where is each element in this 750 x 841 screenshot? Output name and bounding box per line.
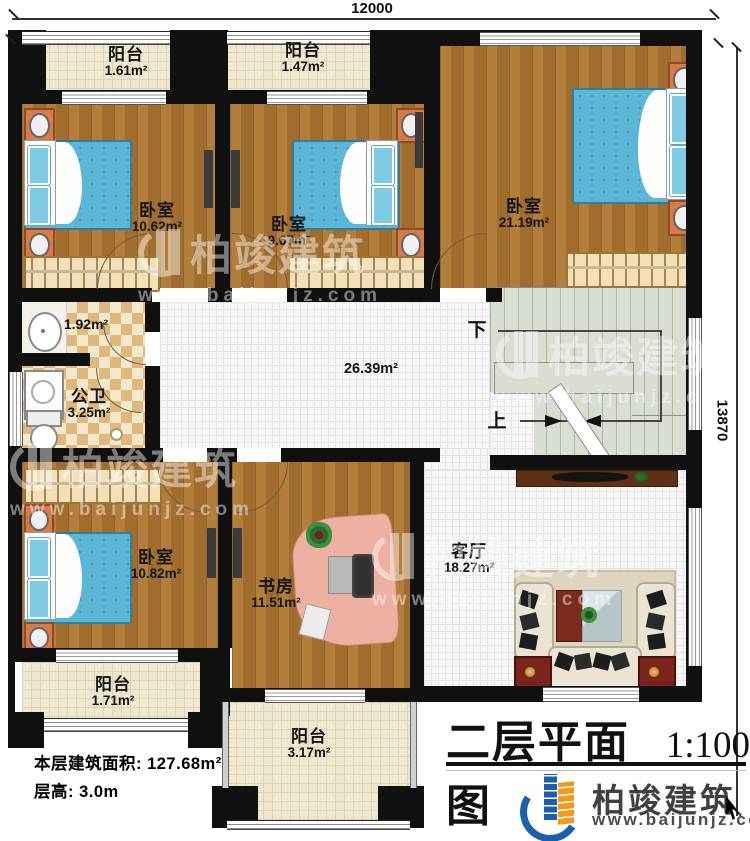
table-plant-icon bbox=[578, 604, 600, 626]
stairs-living-wall bbox=[490, 455, 702, 470]
title-underline bbox=[446, 762, 746, 766]
floor-drain-icon bbox=[110, 428, 123, 441]
stair-down-leader bbox=[498, 330, 662, 332]
room-label-bedroom-top-right: 卧室 21.19m² bbox=[499, 198, 549, 231]
wall-bathroom-right bbox=[145, 302, 160, 332]
pillow bbox=[28, 579, 50, 619]
door-panel bbox=[415, 112, 423, 168]
wall-bathroom-right bbox=[145, 366, 160, 448]
side-table-ornament-icon bbox=[649, 667, 659, 677]
door-panel bbox=[204, 150, 213, 208]
sofa-pillow bbox=[647, 633, 666, 650]
wardrobe bbox=[566, 252, 702, 288]
floor-height-info: 层高: 3.0m bbox=[34, 778, 119, 802]
logo-tower-blue-icon bbox=[544, 774, 557, 820]
balcony-connector bbox=[212, 688, 234, 702]
balcony-railing bbox=[227, 820, 410, 830]
room-label-washroom: 1.92m² bbox=[64, 317, 108, 332]
window bbox=[688, 508, 702, 666]
room-label-bathroom: 公卫 3.25m² bbox=[68, 388, 111, 421]
room-label-bedroom-top-mid: 卧室 9.67m² bbox=[268, 216, 311, 249]
room-label-balcony-bottom-mid: 阳台 3.17m² bbox=[288, 728, 331, 761]
balcony-railing bbox=[410, 702, 417, 788]
wall-hall-south bbox=[207, 448, 237, 462]
room-label-hallway: 26.39m² bbox=[344, 362, 398, 378]
window bbox=[265, 689, 365, 703]
window bbox=[543, 687, 639, 702]
hallway-floor bbox=[160, 302, 490, 448]
door-panel bbox=[233, 528, 242, 578]
door-panel bbox=[231, 150, 240, 208]
balcony-corner-block bbox=[188, 712, 222, 748]
window bbox=[62, 91, 166, 105]
pillow bbox=[372, 146, 394, 185]
window bbox=[56, 649, 178, 663]
balcony-railing bbox=[22, 31, 170, 45]
nightstand bbox=[24, 108, 55, 143]
balcony-railing bbox=[44, 718, 188, 732]
title-underline-thin bbox=[446, 770, 746, 771]
wall-middle bbox=[486, 288, 502, 302]
wardrobe bbox=[288, 256, 426, 292]
wall-middle bbox=[287, 288, 440, 302]
wall-hall-south bbox=[8, 448, 163, 462]
balcony-rail-left bbox=[8, 662, 15, 718]
desk-plant-icon bbox=[306, 522, 332, 548]
stairs-up-label: 上 bbox=[487, 406, 506, 433]
sofa-pillow bbox=[646, 612, 666, 630]
sink-drain-icon bbox=[41, 329, 45, 333]
wall-study-living bbox=[410, 455, 424, 702]
window bbox=[267, 91, 367, 105]
stair-arrow-right-icon bbox=[545, 415, 562, 427]
plan-scale: 1:100 bbox=[666, 724, 750, 767]
wall-bedrooms-divider bbox=[215, 90, 230, 288]
dimension-right-line bbox=[736, 48, 738, 816]
room-label-balcony-top-left: 阳台 1.61m² bbox=[105, 46, 148, 79]
balcony-connector bbox=[390, 688, 424, 702]
sofa-pillow bbox=[519, 633, 538, 651]
floor-area-info: 本层建筑面积: 127.68m² bbox=[34, 750, 222, 774]
brand-logo-icon bbox=[520, 772, 586, 834]
stair-leader-vertical bbox=[660, 330, 662, 422]
pillow bbox=[28, 146, 50, 185]
window bbox=[688, 318, 702, 430]
dimension-top-value: 12000 bbox=[340, 0, 404, 17]
room-label-bedroom-bottom-left: 卧室 10.82m² bbox=[131, 549, 181, 582]
room-label-living-room: 客厅 18.27m² bbox=[444, 543, 494, 576]
sink-icon bbox=[28, 312, 62, 352]
wall-middle bbox=[8, 288, 152, 302]
door-panel bbox=[207, 528, 216, 578]
dimension-tick bbox=[713, 38, 724, 49]
wall-middle bbox=[208, 288, 232, 302]
pillow bbox=[28, 186, 50, 225]
stair-edge-line bbox=[632, 415, 686, 416]
balcony-corner-block bbox=[8, 712, 44, 748]
sofa-pillow bbox=[574, 653, 592, 671]
washer-door-icon bbox=[31, 380, 55, 404]
wall-bedroom-study bbox=[218, 462, 232, 648]
dimension-top-line bbox=[12, 18, 716, 20]
wardrobe bbox=[24, 468, 162, 504]
floor-plan: 阳台 1.61m² 阳台 1.47m² 卧室 10.62m² 卧室 9.67m²… bbox=[0, 0, 750, 841]
balcony-railing bbox=[222, 702, 229, 788]
room-label-balcony-bottom-left: 阳台 1.71m² bbox=[92, 676, 135, 709]
window bbox=[480, 32, 640, 46]
pillow bbox=[28, 538, 50, 578]
console-plant-icon bbox=[634, 472, 648, 482]
logo-tower-orange-icon bbox=[558, 781, 574, 825]
room-label-bedroom-top-left: 卧室 10.62m² bbox=[132, 202, 182, 235]
room-label-study: 书房 11.51m² bbox=[251, 578, 301, 611]
tv-icon bbox=[552, 472, 628, 482]
side-table-ornament-icon bbox=[525, 667, 535, 677]
pillow bbox=[372, 186, 394, 225]
monitor-icon bbox=[352, 554, 374, 598]
dimension-right-value: 13870 bbox=[714, 399, 731, 443]
window bbox=[9, 372, 23, 446]
wall-bathroom-inner bbox=[22, 353, 90, 366]
room-label-balcony-top-mid: 阳台 1.47m² bbox=[282, 42, 325, 75]
stairs-down-label: 下 bbox=[467, 315, 486, 342]
wall-left bbox=[8, 30, 22, 662]
